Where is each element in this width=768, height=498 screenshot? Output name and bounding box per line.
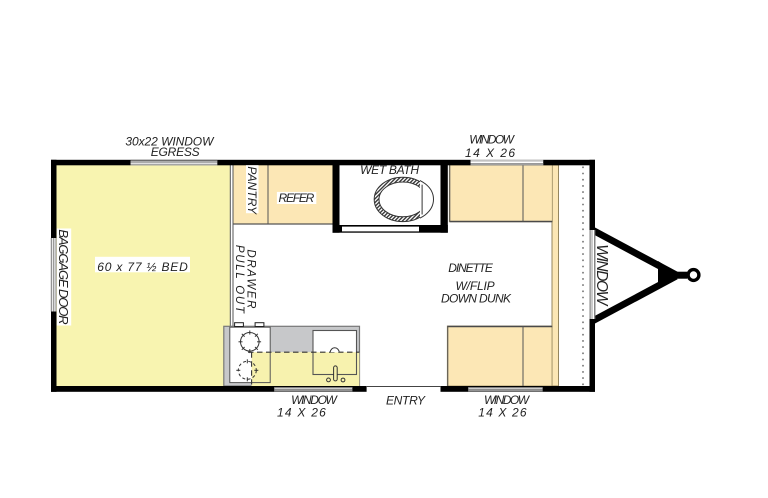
svg-text:14 X 26: 14 X 26 <box>478 405 527 419</box>
svg-text:WINDOW: WINDOW <box>593 244 610 306</box>
svg-text:ENTRY: ENTRY <box>386 393 426 407</box>
svg-text:DOWN DUNK: DOWN DUNK <box>441 291 512 305</box>
svg-text:DRAWER: DRAWER <box>244 249 256 308</box>
svg-text:PULL OUT: PULL OUT <box>233 245 245 314</box>
svg-text:60 x 77 ½ BED: 60 x 77 ½ BED <box>97 260 188 274</box>
svg-text:BAGGAGE DOOR: BAGGAGE DOOR <box>56 229 71 324</box>
svg-text:PANTRY: PANTRY <box>245 166 259 215</box>
svg-text:14 X 26: 14 X 26 <box>465 146 515 160</box>
svg-text:EGRESS: EGRESS <box>151 145 200 159</box>
svg-text:REFER: REFER <box>279 191 315 205</box>
svg-text:14 X 26: 14 X 26 <box>277 405 326 419</box>
svg-text:WET BATH: WET BATH <box>360 163 419 177</box>
svg-text:DINETTE: DINETTE <box>448 261 494 275</box>
svg-text:WINDOW: WINDOW <box>469 133 515 147</box>
